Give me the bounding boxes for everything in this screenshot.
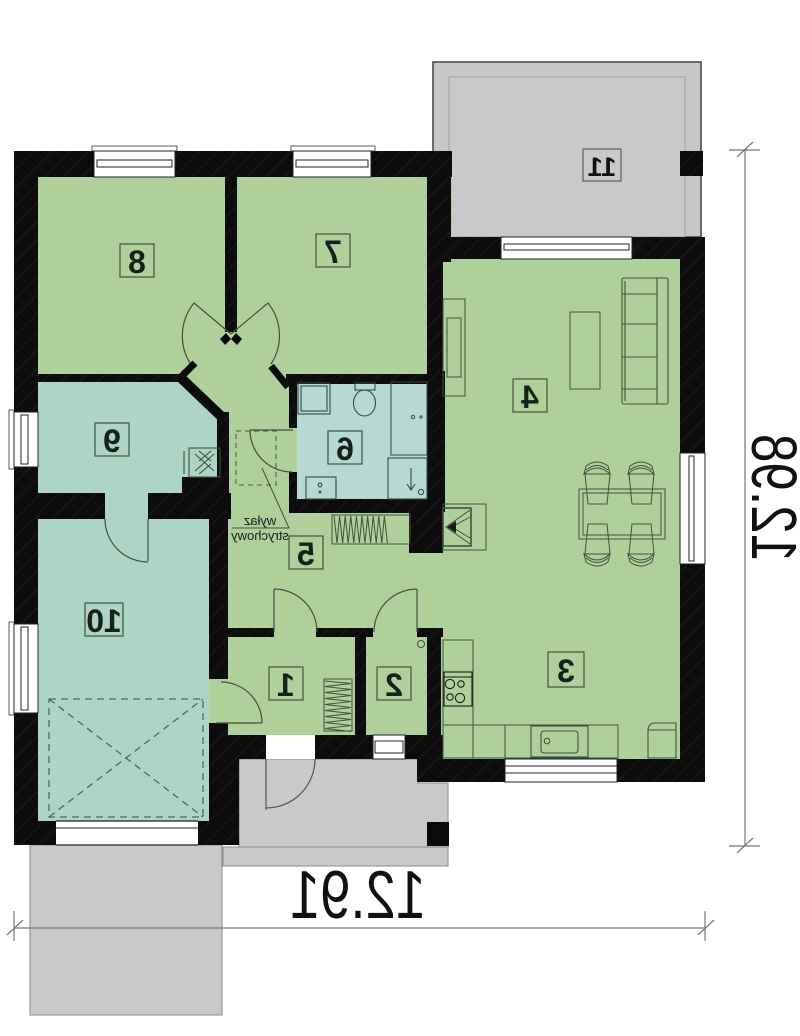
svg-text:wyłaz: wyłaz bbox=[244, 513, 278, 528]
svg-text:1: 1 bbox=[277, 667, 295, 703]
svg-text:9: 9 bbox=[103, 423, 121, 459]
svg-text:12.98: 12.98 bbox=[738, 434, 800, 562]
svg-text:3: 3 bbox=[557, 653, 575, 689]
svg-text:10: 10 bbox=[86, 603, 122, 639]
svg-text:4: 4 bbox=[521, 379, 539, 415]
svg-text:6: 6 bbox=[336, 431, 354, 467]
svg-text:8: 8 bbox=[128, 244, 146, 280]
svg-text:12.91: 12.91 bbox=[290, 857, 426, 933]
svg-text:7: 7 bbox=[324, 234, 342, 270]
svg-text:5: 5 bbox=[297, 536, 315, 572]
svg-text:strychowy: strychowy bbox=[231, 528, 289, 543]
svg-text:2: 2 bbox=[385, 667, 403, 703]
svg-text:11: 11 bbox=[588, 152, 617, 182]
